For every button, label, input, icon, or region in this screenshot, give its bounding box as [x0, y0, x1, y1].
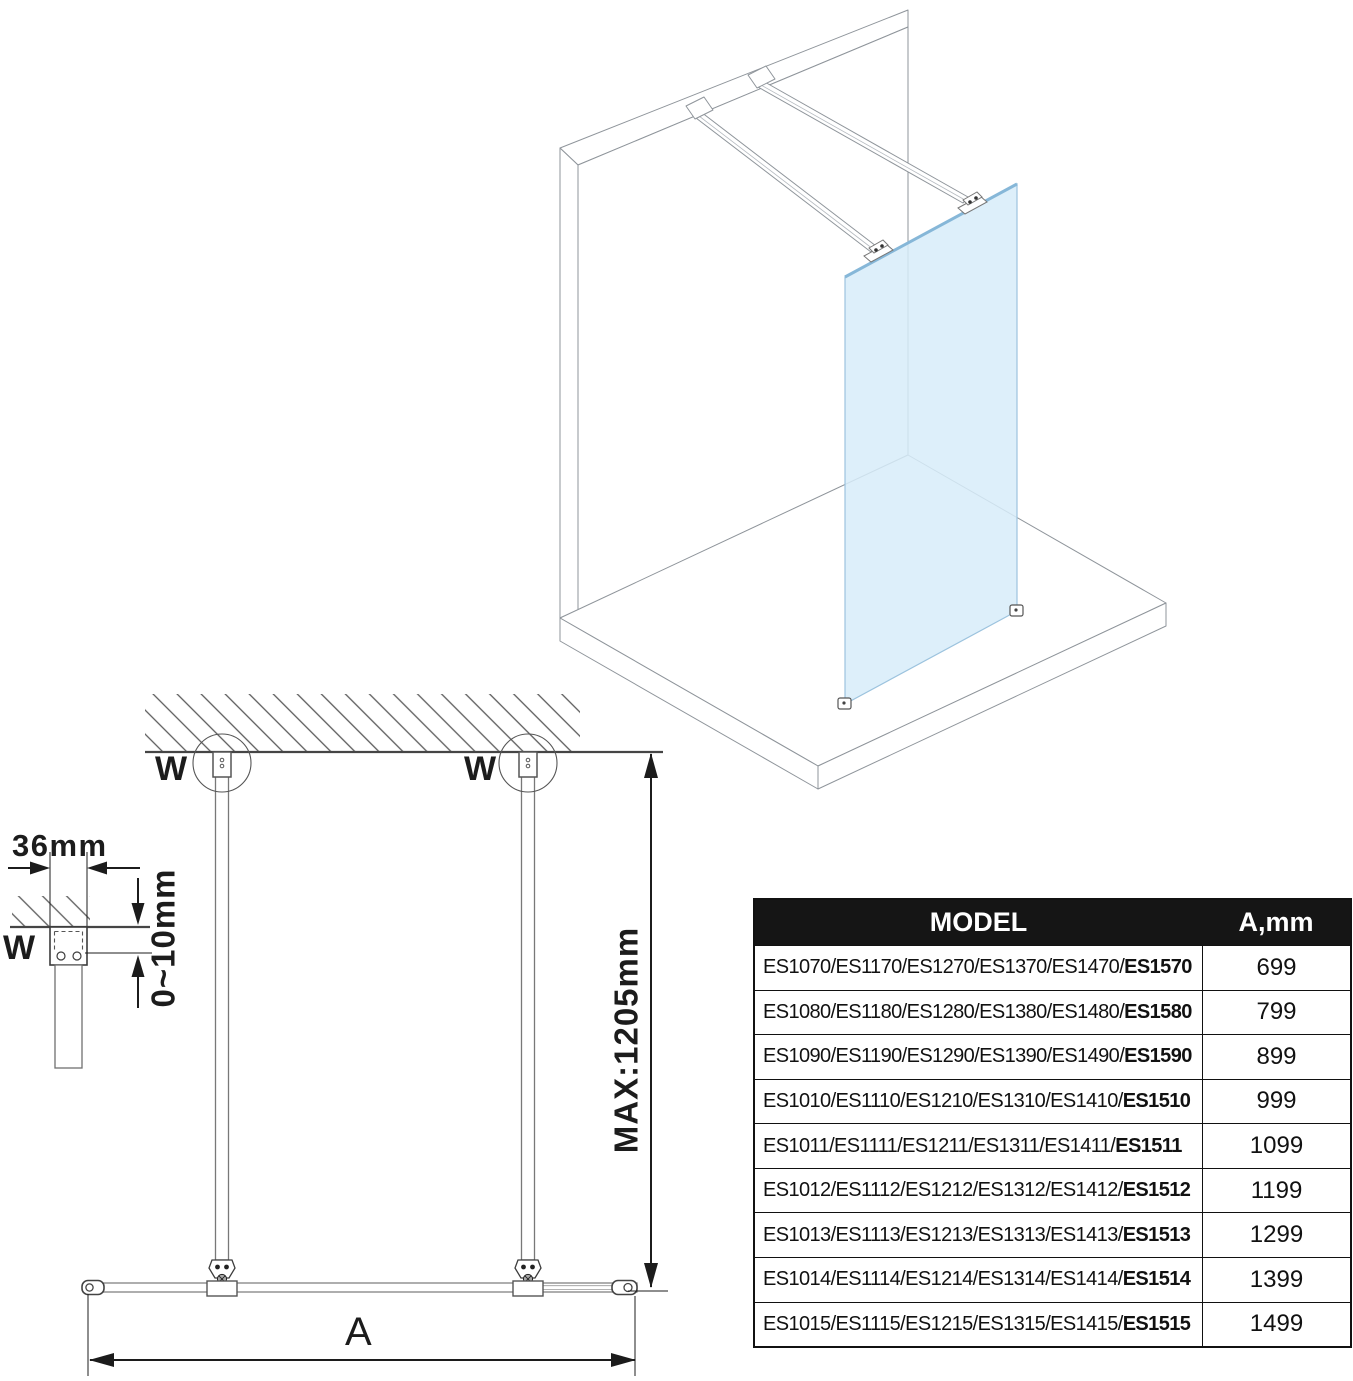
wall-anchor-label-right: W — [464, 752, 496, 786]
a-mm-cell: 1099 — [1202, 1124, 1350, 1168]
model-cell-text: ES1070/ES1170/ES1270/ES1370/ES1470/ — [763, 956, 1124, 979]
model-cell-text: ES1012/ES1112/ES1212/ES1312/ES1412/ — [763, 1179, 1123, 1202]
a-mm-value: 1199 — [1251, 1177, 1303, 1205]
wall-profile-detail — [10, 896, 150, 1068]
a-mm-value: 899 — [1256, 1043, 1296, 1071]
wall-hatch — [145, 694, 580, 752]
a-mm-cell: 999 — [1202, 1080, 1350, 1124]
model-table-body: ES1070/ES1170/ES1270/ES1370/ES1470/ES157… — [755, 945, 1350, 1346]
screw-hole — [73, 952, 81, 960]
table-row: ES1012/ES1112/ES1212/ES1312/ES1412/ES151… — [755, 1168, 1350, 1213]
model-cell-bold: ES1580 — [1124, 1001, 1192, 1024]
a-mm-value: 1499 — [1250, 1310, 1303, 1338]
model-cell: ES1014/ES1114/ES1214/ES1314/ES1414/ES151… — [755, 1258, 1202, 1302]
model-cell-text: ES1015/ES1115/ES1215/ES1315/ES1415/ — [763, 1313, 1123, 1336]
model-table: MODEL A,mm ES1070/ES1170/ES1270/ES1370/E… — [753, 898, 1352, 1348]
glass-panel-plan — [88, 1283, 637, 1292]
model-cell-text: ES1013/ES1113/ES1213/ES1313/ES1413/ — [763, 1224, 1123, 1247]
model-cell-bold: ES1513 — [1123, 1224, 1191, 1247]
model-cell: ES1015/ES1115/ES1215/ES1315/ES1415/ES151… — [755, 1303, 1202, 1347]
model-cell-bold: ES1590 — [1124, 1045, 1192, 1068]
table-row: ES1014/ES1114/ES1214/ES1314/ES1414/ES151… — [755, 1257, 1350, 1302]
header-a-mm: A,mm — [1202, 907, 1350, 938]
glass-clamp-plan — [513, 1281, 543, 1296]
a-mm-value: 799 — [1256, 998, 1296, 1026]
a-mm-cell: 1199 — [1202, 1169, 1350, 1213]
header-model: MODEL — [755, 907, 1202, 938]
glass-clamp-plan — [207, 1281, 237, 1296]
table-row: ES1090/ES1190/ES1290/ES1390/ES1490/ES159… — [755, 1034, 1350, 1079]
model-cell-text: ES1090/ES1190/ES1290/ES1390/ES1490/ — [763, 1045, 1124, 1068]
model-cell-bold: ES1512 — [1123, 1179, 1191, 1202]
model-cell-bold: ES1510 — [1123, 1090, 1191, 1113]
table-row: ES1015/ES1115/ES1215/ES1315/ES1415/ES151… — [755, 1302, 1350, 1347]
model-cell-text: ES1011/ES1111/ES1211/ES1311/ES1411/ — [763, 1135, 1115, 1158]
model-cell: ES1080/ES1180/ES1280/ES1380/ES1480/ES158… — [755, 991, 1202, 1035]
table-row: ES1070/ES1170/ES1270/ES1370/ES1470/ES157… — [755, 945, 1350, 990]
dim-a-label: A — [345, 1312, 372, 1352]
table-row: ES1010/ES1110/ES1210/ES1310/ES1410/ES151… — [755, 1079, 1350, 1124]
a-mm-cell: 1499 — [1202, 1303, 1350, 1347]
wall-anchor-label-detail: W — [3, 931, 35, 965]
model-cell: ES1070/ES1170/ES1270/ES1370/ES1470/ES157… — [755, 946, 1202, 990]
model-cell: ES1010/ES1110/ES1210/ES1310/ES1410/ES151… — [755, 1080, 1202, 1124]
a-mm-value: 999 — [1256, 1087, 1296, 1115]
wall-anchor-label-left: W — [155, 752, 187, 786]
model-cell: ES1011/ES1111/ES1211/ES1311/ES1411/ES151… — [755, 1124, 1202, 1168]
a-mm-value: 1399 — [1250, 1266, 1303, 1294]
model-cell: ES1090/ES1190/ES1290/ES1390/ES1490/ES159… — [755, 1035, 1202, 1079]
model-cell-text: ES1080/ES1180/ES1280/ES1380/ES1480/ — [763, 1001, 1124, 1024]
a-mm-value: 1299 — [1250, 1221, 1303, 1249]
wall-profile-bracket — [50, 927, 87, 965]
model-cell-text: ES1010/ES1110/ES1210/ES1310/ES1410/ — [763, 1090, 1123, 1113]
a-mm-value: 699 — [1256, 954, 1296, 982]
table-header: MODEL A,mm — [755, 900, 1350, 945]
model-cell-bold: ES1511 — [1115, 1135, 1181, 1158]
a-mm-cell: 799 — [1202, 991, 1350, 1035]
model-cell-bold: ES1570 — [1124, 956, 1192, 979]
wall-panel-edge — [560, 148, 578, 618]
installation-diagram-page: 36mm W 0~10mm W W MAX:1205mm A MODEL A,m… — [0, 0, 1353, 1381]
dim-max-label: MAX:1205mm — [610, 927, 643, 1153]
table-row: ES1013/ES1113/ES1213/ES1313/ES1413/ES151… — [755, 1212, 1350, 1257]
a-mm-value: 1099 — [1250, 1132, 1303, 1160]
wall-hatch-detail — [12, 896, 90, 927]
support-bar-plan — [522, 752, 535, 1260]
dim-36mm-label: 36mm — [12, 830, 108, 861]
a-mm-cell: 699 — [1202, 946, 1350, 990]
table-row: ES1011/ES1111/ES1211/ES1311/ES1411/ES151… — [755, 1123, 1350, 1168]
table-row: ES1080/ES1180/ES1280/ES1380/ES1480/ES158… — [755, 990, 1350, 1035]
model-cell-bold: ES1514 — [1123, 1268, 1191, 1291]
model-cell-bold: ES1515 — [1123, 1313, 1191, 1336]
dim-gap-label: 0~10mm — [147, 868, 180, 1007]
screw-hole — [57, 952, 65, 960]
model-cell: ES1012/ES1112/ES1212/ES1312/ES1412/ES151… — [755, 1169, 1202, 1213]
a-mm-cell: 899 — [1202, 1035, 1350, 1079]
support-bar-plan — [216, 752, 229, 1260]
a-mm-cell: 1399 — [1202, 1258, 1350, 1302]
a-mm-cell: 1299 — [1202, 1213, 1350, 1257]
support-bar-detail — [55, 965, 82, 1068]
model-cell-text: ES1014/ES1114/ES1214/ES1314/ES1414/ — [763, 1268, 1123, 1291]
model-cell: ES1013/ES1113/ES1213/ES1313/ES1413/ES151… — [755, 1213, 1202, 1257]
